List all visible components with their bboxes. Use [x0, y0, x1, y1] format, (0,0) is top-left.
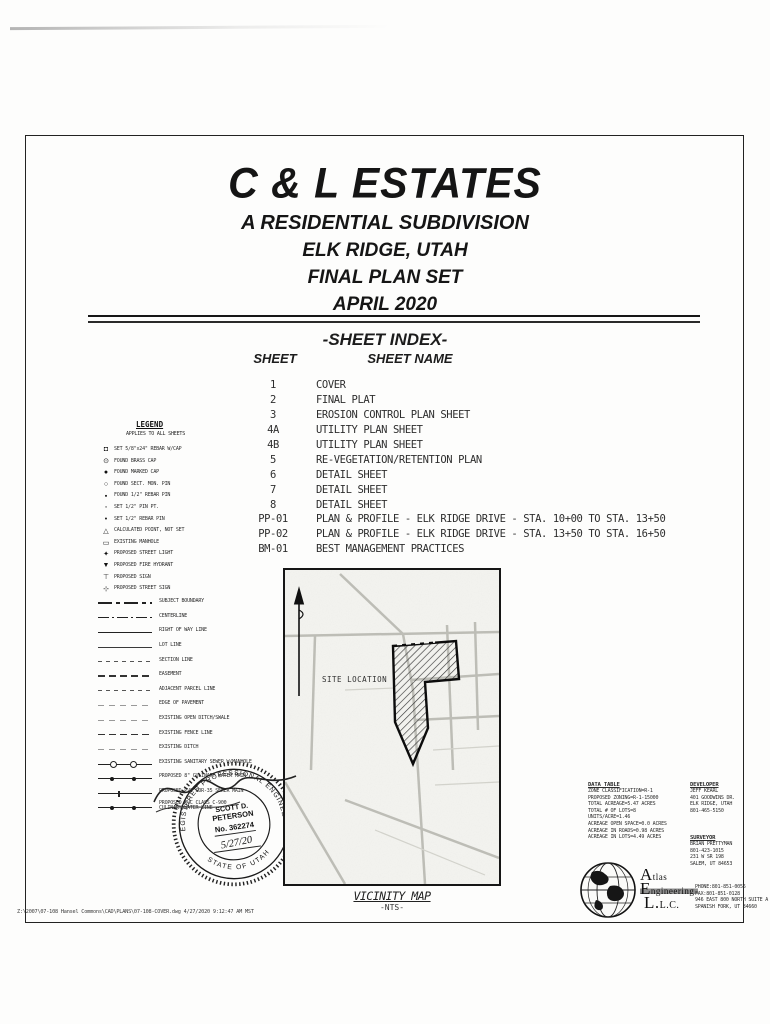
legend-item: ● FOUND MARKED CAP — [98, 467, 254, 479]
legend-item-label: FOUND BRASS CAP — [114, 459, 156, 465]
legend-linestyle-sample — [98, 749, 152, 750]
project-title: C & L ESTATES — [120, 159, 650, 207]
sheet-index-row: 4A UTILITY PLAN SHEET — [240, 423, 700, 438]
sheet-index-table: 1 COVER 2 FINAL PLAT 3 EROSION CONTROL P… — [240, 378, 700, 557]
developer-line: 801-465-5150 — [690, 808, 770, 815]
legend-symbol-icon: • — [98, 516, 114, 523]
title-divider-rule — [88, 315, 700, 317]
sheet-name: DETAIL SHEET — [316, 484, 387, 496]
data-table-line: UNITS/ACRE=1.46 — [588, 814, 688, 821]
sheet-name: DETAIL SHEET — [316, 469, 387, 481]
legend-item: △ CALCULATED POINT, NOT SET — [98, 525, 254, 537]
legend-item: CENTERLINE — [98, 609, 254, 624]
globe-icon — [578, 860, 638, 920]
legend-subheading: APPLIES TO ALL SHEETS — [126, 431, 254, 437]
legend-linestyle-sample — [98, 705, 152, 706]
firm-contact-line: 946 EAST 800 NORTH SUITE A — [695, 897, 770, 904]
legend-item-label: FOUND MARKED CAP — [114, 470, 159, 476]
legend-item: EASEMENT — [98, 668, 254, 683]
firm-contact-line: SPANISH FORK, UT 84660 — [695, 904, 770, 911]
legend-linestyle-sample — [98, 764, 152, 765]
data-table-line: ACREAGE IN LOTS=4.49 ACRES — [588, 834, 688, 841]
legend-linestyle-sample — [98, 647, 152, 648]
legend-symbol-icon: ▭ — [98, 539, 114, 547]
legend-item: ✦ PROPOSED STREET LIGHT — [98, 548, 254, 560]
surveyor-line: 801-423-1015 — [690, 848, 770, 855]
sheet-index-row: 7 DETAIL SHEET — [240, 482, 700, 497]
legend-item-label: FOUND 1/2" REBAR PIN — [114, 493, 170, 499]
sheet-index-col-name: SHEET NAME — [330, 351, 490, 366]
sheet-index-row: 4B UTILITY PLAN SHEET — [240, 438, 700, 453]
legend-linestyle-sample — [98, 778, 152, 779]
legend-heading: LEGEND — [136, 420, 254, 429]
stamp-ring-bottom-text: STATE OF UTAH — [205, 848, 273, 876]
legend-item-label: EDGE OF PAVEMENT — [159, 701, 204, 707]
project-location: ELK RIDGE, UTAH — [120, 240, 650, 262]
data-table-line: PROPOSED ZONING=R-1-15000 — [588, 795, 688, 802]
sheet-name: UTILITY PLAN SHEET — [316, 439, 423, 451]
legend-item: ADJACENT PARCEL LINE — [98, 682, 254, 697]
legend-item: EDGE OF PAVEMENT — [98, 697, 254, 712]
vicinity-map-title: VICINITY MAP — [300, 889, 484, 903]
legend-item-label: EXISTING DITCH — [159, 745, 198, 751]
sheet-index-row: 6 DETAIL SHEET — [240, 467, 700, 482]
legend-item-label: ADJACENT PARCEL LINE — [159, 687, 215, 693]
legend-item-label: CENTERLINE — [159, 614, 187, 620]
legend-linestyle-sample — [98, 807, 152, 808]
developer-line: ELK RIDGE, UTAH — [690, 801, 770, 808]
engineer-signature — [150, 762, 300, 822]
plot-stamp-text: Z:\2007\07-108 Hansel Commons\CAD\PLANS\… — [17, 909, 254, 915]
developer-lines: JEFF KEARL401 GOODWINS DR.ELK RIDGE, UTA… — [690, 788, 770, 814]
data-table-line: TOTAL ACREAGE=5.47 ACRES — [588, 801, 688, 808]
engineering-firm-logo: Atlas Engineering L.L.C. — [578, 852, 696, 928]
legend-item: • SET 1/2" REBAR PIN — [98, 514, 254, 526]
sheet-index-row: 3 EROSION CONTROL PLAN SHEET — [240, 408, 700, 423]
legend: LEGEND APPLIES TO ALL SHEETS ◘ SET 5/8"x… — [98, 420, 254, 814]
legend-item-label: PROPOSED SIGN — [114, 575, 151, 581]
legend-item-label: FOUND SECT. MON. PIN — [114, 482, 170, 488]
legend-symbol-icon: ⊤ — [98, 573, 114, 581]
legend-linestyle-sample — [98, 734, 152, 735]
sheet-index-row: 1 COVER — [240, 378, 700, 393]
legend-symbol-icon: △ — [98, 527, 114, 535]
legend-item: ○ FOUND SECT. MON. PIN — [98, 479, 254, 491]
sheet-name: DETAIL SHEET — [316, 499, 387, 511]
sheet-number: 1 — [240, 379, 306, 391]
legend-symbol-icon: ⊹ — [98, 585, 114, 593]
legend-linestyle-sample — [98, 675, 152, 676]
cover-sheet-page: C & L ESTATES A RESIDENTIAL SUBDIVISION … — [0, 0, 770, 1024]
legend-linestyle-sample — [98, 617, 152, 619]
legend-item-label: PROPOSED FIRE HYDRANT — [114, 563, 173, 569]
sheet-index-row: 5 RE-VEGETATION/RETENTION PLAN — [240, 452, 700, 467]
sheet-index-heading: -SHEET INDEX- — [120, 330, 650, 350]
legend-item-label: RIGHT OF WAY LINE — [159, 628, 207, 634]
legend-item: EXISTING FENCE LINE — [98, 726, 254, 741]
legend-linestyle-sample — [98, 632, 152, 633]
legend-symbol-list: ◘ SET 5/8"x24" REBAR W/CAP ⊙ FOUND BRASS… — [98, 444, 254, 595]
legend-linestyle-sample — [98, 602, 152, 604]
surveyor-line: BRIAN PRETTYMAN — [690, 841, 770, 848]
developer-line: 401 GOODWINS DR. — [690, 795, 770, 802]
sheet-index-row: 2 FINAL PLAT — [240, 393, 700, 408]
legend-item: SUBJECT BOUNDARY — [98, 595, 254, 610]
data-table-line: ACREAGE IN ROADS=0.98 ACRES — [588, 828, 688, 835]
sheet-name: EROSION CONTROL PLAN SHEET — [316, 409, 470, 421]
legend-symbol-icon: ◦ — [98, 504, 114, 511]
legend-item-label: PROPOSED STREET LIGHT — [114, 551, 173, 557]
surveyor-line: SALEM, UT 84653 — [690, 861, 770, 868]
legend-item-label: SET 5/8"x24" REBAR W/CAP — [114, 447, 181, 453]
legend-item-label: PROPOSED STREET SIGN — [114, 586, 170, 592]
firm-contact-line: PHONE:801-851-0056 — [695, 884, 770, 891]
sheet-number: 2 — [240, 394, 306, 406]
legend-item-label: LOT LINE — [159, 643, 181, 649]
data-table: DATA TABLE ZONE CLASSIFICATION=R-1PROPOS… — [588, 782, 688, 841]
surveyor-lines: BRIAN PRETTYMAN801-423-1015231 W SR 198S… — [690, 841, 770, 867]
legend-item: RIGHT OF WAY LINE — [98, 624, 254, 639]
firm-contact-lines: PHONE:801-851-0056FAX:801-851-0128946 EA… — [695, 884, 770, 910]
legend-item-label: EXISTING OPEN DITCH/SWALE — [159, 716, 229, 722]
legend-item-label: SET 1/2" PIN PT. — [114, 505, 159, 511]
sheet-index-row: 8 DETAIL SHEET — [240, 497, 700, 512]
surveyor-line: 231 W SR 198 — [690, 854, 770, 861]
legend-item: ⊹ PROPOSED STREET SIGN — [98, 583, 254, 595]
legend-item: ▭ EXISTING MANHOLE — [98, 537, 254, 549]
svg-text:STATE OF UTAH: STATE OF UTAH — [205, 848, 273, 876]
legend-symbol-icon: ● — [98, 469, 114, 476]
legend-item: ▼ PROPOSED FIRE HYDRANT — [98, 560, 254, 572]
legend-item: SECTION LINE — [98, 653, 254, 668]
sheet-index-row: PP-02 PLAN & PROFILE - ELK RIDGE DRIVE -… — [240, 527, 700, 542]
data-table-line: ZONE CLASSIFICATION=R-1 — [588, 788, 688, 795]
site-location-label: SITE LOCATION — [322, 675, 387, 684]
data-table-line: ACREAGE OPEN SPACE=0.0 ACRES — [588, 821, 688, 828]
legend-item: ⊤ PROPOSED SIGN — [98, 572, 254, 584]
legend-symbol-icon: ◘ — [98, 446, 114, 453]
legend-item-label: SECTION LINE — [159, 658, 193, 664]
sheet-index-col-sheet: SHEET — [240, 351, 310, 366]
legend-item: ◘ SET 5/8"x24" REBAR W/CAP — [98, 444, 254, 456]
data-table-line: TOTAL # OF LOTS=8 — [588, 808, 688, 815]
legend-item: LOT LINE — [98, 639, 254, 654]
legend-item: ◦ SET 1/2" PIN PT. — [98, 502, 254, 514]
legend-linestyle-sample — [98, 661, 152, 662]
sheet-index-row: BM-01 BEST MANAGEMENT PRACTICES — [240, 542, 700, 557]
legend-symbol-icon: ○ — [98, 481, 114, 488]
developer-line: JEFF KEARL — [690, 788, 770, 795]
plan-set-date: APRIL 2020 — [120, 294, 650, 316]
firm-contact-line: FAX:801-851-0128 — [695, 891, 770, 898]
legend-item: EXISTING DITCH — [98, 741, 254, 756]
legend-item: EXISTING OPEN DITCH/SWALE — [98, 711, 254, 726]
legend-linestyle-sample — [98, 720, 152, 721]
developer-block: DEVELOPER JEFF KEARL401 GOODWINS DR.ELK … — [690, 782, 770, 814]
legend-item: ▪ FOUND 1/2" REBAR PIN — [98, 490, 254, 502]
legend-item: ⊙ FOUND BRASS CAP — [98, 456, 254, 468]
legend-item-label: SET 1/2" REBAR PIN — [114, 517, 165, 523]
sheet-index-row: PP-01 PLAN & PROFILE - ELK RIDGE DRIVE -… — [240, 512, 700, 527]
legend-symbol-icon: ⊙ — [98, 457, 114, 465]
surveyor-block: SURVEYOR BRIAN PRETTYMAN801-423-1015231 … — [690, 835, 770, 867]
legend-item-label: EASEMENT — [159, 672, 181, 678]
vicinity-map: SITE LOCATION — [283, 568, 501, 886]
plan-set-label: FINAL PLAN SET — [120, 267, 650, 289]
firm-name-line3: L.L.C. — [644, 897, 698, 911]
project-subtitle: A RESIDENTIAL SUBDIVISION — [120, 212, 650, 235]
vicinity-map-scale: -NTS- — [300, 903, 484, 912]
legend-item-label: EXISTING FENCE LINE — [159, 731, 212, 737]
title-divider-rule-2 — [88, 321, 700, 323]
scan-artifact — [10, 25, 390, 30]
sheet-name: UTILITY PLAN SHEET — [316, 424, 423, 436]
data-table-lines: ZONE CLASSIFICATION=R-1PROPOSED ZONING=R… — [588, 788, 688, 841]
title-block: C & L ESTATES A RESIDENTIAL SUBDIVISION … — [120, 160, 650, 316]
vicinity-map-caption: VICINITY MAP -NTS- — [300, 889, 484, 912]
sheet-name: RE-VEGETATION/RETENTION PLAN — [316, 454, 482, 466]
legend-item-label: SUBJECT BOUNDARY — [159, 599, 204, 605]
legend-item-label: EXISTING MANHOLE — [114, 540, 159, 546]
legend-item-label: CALCULATED POINT, NOT SET — [114, 528, 184, 534]
firm-contact-block: PHONE:801-851-0056FAX:801-851-0128946 EA… — [695, 884, 770, 910]
sheet-name: PLAN & PROFILE - ELK RIDGE DRIVE - STA. … — [316, 528, 665, 540]
legend-linestyle-sample — [98, 690, 152, 691]
sheet-name: BEST MANAGEMENT PRACTICES — [316, 543, 464, 555]
legend-symbol-icon: ▪ — [98, 493, 114, 500]
sheet-name: PLAN & PROFILE - ELK RIDGE DRIVE - STA. … — [316, 513, 665, 525]
legend-linestyle-sample — [98, 793, 152, 794]
legend-symbol-icon: ✦ — [98, 550, 114, 558]
legend-symbol-icon: ▼ — [98, 562, 114, 569]
sheet-name: FINAL PLAT — [316, 394, 375, 406]
sheet-name: COVER — [316, 379, 346, 391]
